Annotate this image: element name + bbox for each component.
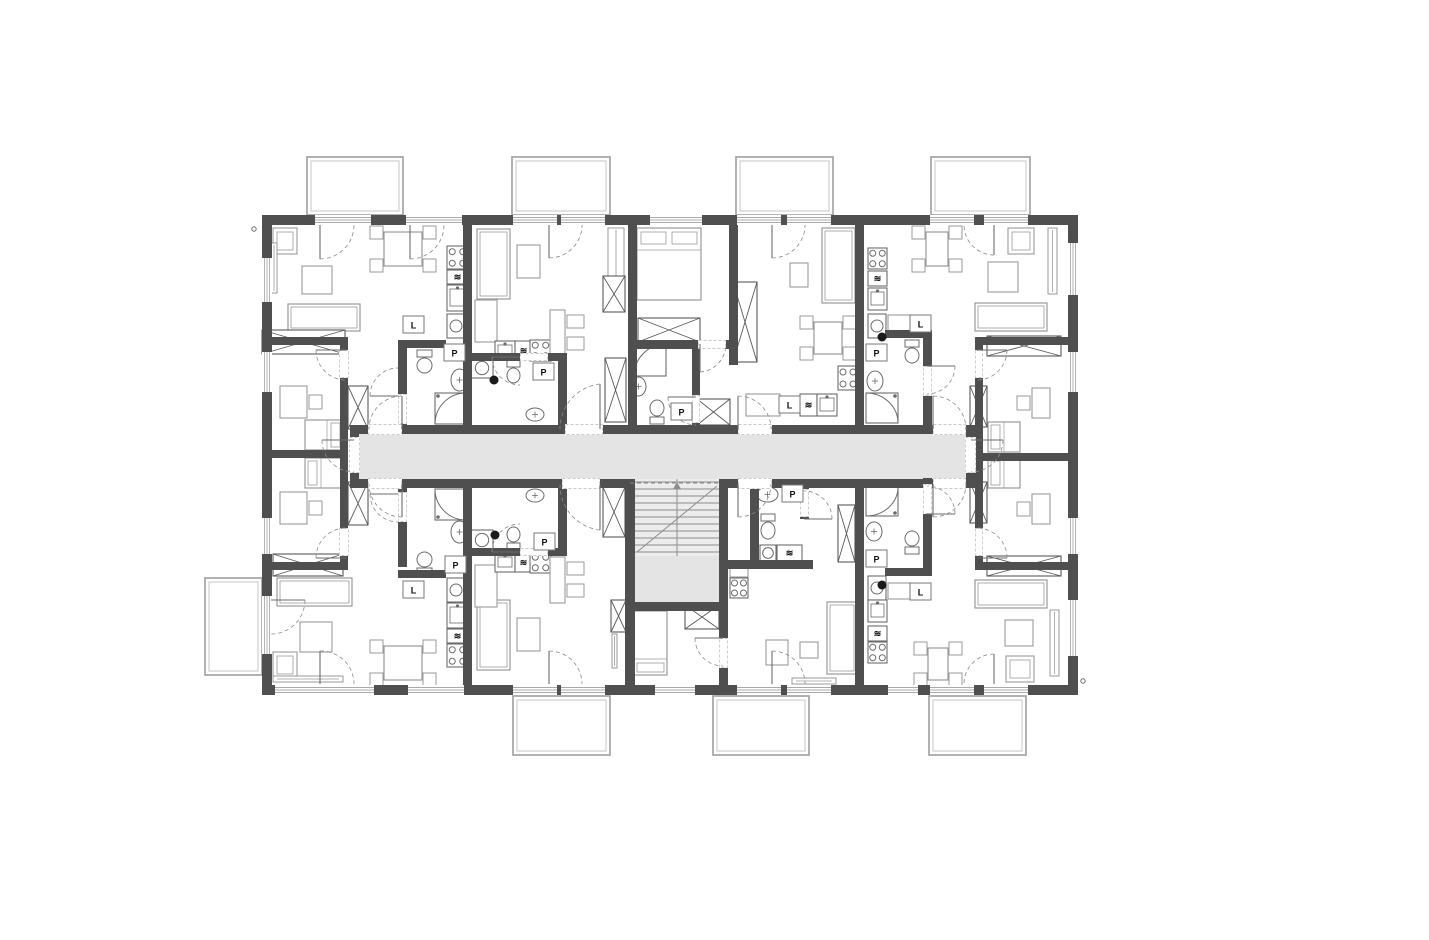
door-swing [772, 225, 805, 258]
wall [855, 225, 864, 425]
toilet-bowl [417, 552, 432, 567]
door-opening [738, 478, 772, 489]
chair [1017, 502, 1030, 516]
table [988, 262, 1018, 292]
toilet-tank [905, 547, 919, 554]
chair [949, 259, 962, 272]
balcony [736, 157, 833, 215]
wall [463, 225, 472, 425]
wall [727, 560, 813, 569]
fixture-label-P: P [873, 555, 879, 565]
kitchen-counter [475, 300, 497, 342]
table [800, 642, 818, 658]
chair [567, 584, 584, 597]
fixture-label-L: L [918, 588, 924, 598]
faucet [876, 601, 879, 604]
balcony-inner-rail [517, 700, 606, 751]
desk [1032, 388, 1050, 418]
dining-table [928, 648, 948, 680]
kitchen-counter [888, 583, 912, 599]
chair [567, 562, 584, 575]
door-opening [562, 478, 600, 489]
chair [949, 673, 962, 686]
toilet-bowl [761, 522, 775, 539]
door-opening [975, 350, 983, 378]
sofabed [477, 600, 510, 670]
toilet-bowl [417, 358, 432, 373]
wall [558, 480, 567, 556]
toilet-tank [905, 340, 919, 347]
balcony-inner-rail [717, 700, 805, 751]
fixture-label-L: L [787, 401, 793, 411]
table [302, 266, 332, 294]
wall [628, 225, 637, 425]
door-opening [339, 528, 349, 556]
floor-drain [490, 376, 499, 385]
dishwasher-symbol: ≋ [454, 631, 462, 641]
dishwasher-symbol: ≋ [454, 272, 462, 282]
bed-single [634, 611, 667, 675]
chair [423, 673, 436, 686]
table [766, 640, 788, 665]
fixture-label-P: P [452, 561, 458, 571]
fixture-label-P: P [451, 349, 457, 359]
balcony-inner-rail [933, 700, 1022, 751]
balcony [929, 696, 1026, 755]
wall [625, 479, 635, 685]
balcony-inner-rail [740, 161, 829, 211]
bed-single [305, 420, 343, 450]
balcony [713, 696, 809, 755]
door-opening [738, 424, 772, 435]
sofa [822, 228, 855, 303]
toilet-bowl [507, 368, 520, 383]
chair [949, 226, 962, 239]
shower-drain [436, 515, 440, 519]
floor-drain [878, 581, 887, 590]
kitchen-counter [746, 394, 780, 416]
balcony-inner-rail [209, 582, 258, 671]
balcony-inner-rail [311, 161, 399, 211]
sofa [277, 578, 352, 606]
chair [309, 395, 322, 409]
wall [398, 570, 446, 578]
chair [914, 673, 927, 686]
door-swing [695, 638, 723, 666]
floor-drain [491, 531, 500, 540]
fixture-label-L: L [918, 320, 924, 330]
fixture-label-P: P [789, 490, 795, 500]
toilet-tank [417, 350, 432, 357]
survey-mark [252, 227, 256, 231]
balcony [931, 157, 1030, 215]
door-opening [719, 638, 728, 668]
sofabed [477, 229, 510, 299]
door-opening [698, 340, 726, 349]
balcony [205, 578, 262, 675]
door-opening [933, 424, 966, 435]
door-opening [339, 350, 349, 378]
door-opening [923, 484, 932, 514]
shower-drain [893, 394, 897, 398]
wall [463, 488, 472, 685]
staircase-landing [635, 556, 719, 602]
door-opening [692, 395, 700, 423]
balcony-inner-rail [516, 161, 606, 211]
faucet [456, 286, 459, 289]
dishwasher-symbol: ≋ [786, 548, 794, 558]
dining-table [814, 322, 842, 354]
wall [350, 425, 975, 434]
wall [625, 602, 728, 611]
kitchen-counter [475, 565, 497, 607]
chair [912, 259, 925, 272]
chair [949, 642, 962, 655]
shower [435, 489, 466, 520]
door-opening [368, 478, 402, 489]
wall [750, 479, 759, 564]
chair [843, 347, 856, 360]
wall [729, 225, 738, 365]
toilet-tank [650, 417, 664, 424]
chair [843, 316, 856, 329]
chair [370, 226, 383, 239]
balcony [307, 157, 403, 215]
faucet [825, 395, 828, 398]
chair [370, 259, 383, 272]
dishwasher-symbol: ≋ [805, 400, 813, 410]
chair [800, 316, 813, 329]
fixture-label-P: P [873, 349, 879, 359]
balcony [512, 157, 610, 215]
balcony-inner-rail [935, 161, 1026, 211]
sofa [288, 304, 360, 331]
sofa [827, 602, 857, 674]
shower-drain [436, 394, 440, 398]
wall [983, 337, 1069, 345]
dishwasher-symbol: ≋ [874, 629, 882, 639]
dishwasher-symbol: ≋ [874, 274, 882, 284]
wall [262, 562, 348, 570]
chair [1017, 396, 1030, 410]
table [517, 618, 540, 651]
table [300, 622, 332, 652]
door-swing [370, 494, 398, 522]
sofa [975, 303, 1047, 331]
chair [912, 226, 925, 239]
chair [370, 640, 383, 653]
desk [1032, 494, 1050, 524]
wall [398, 340, 446, 348]
wall [262, 450, 348, 458]
balcony [513, 696, 610, 755]
door-swing [320, 225, 354, 259]
bed-single [305, 458, 343, 488]
table [790, 263, 808, 287]
table [1005, 620, 1033, 646]
shower [435, 393, 466, 424]
chair [914, 642, 927, 655]
table [517, 245, 540, 278]
toilet-bowl [507, 527, 520, 542]
desk [280, 492, 307, 524]
door-opening [368, 424, 402, 435]
chair [800, 347, 813, 360]
survey-mark [1081, 679, 1085, 683]
fixture-label-P: P [541, 538, 547, 548]
door-swing [549, 651, 582, 684]
toilet-bowl [905, 348, 919, 363]
faucet [876, 289, 879, 292]
chair [567, 337, 584, 350]
door-opening [565, 424, 603, 435]
toilet-tank [507, 360, 520, 367]
door-opening [975, 528, 983, 556]
bed-double [637, 228, 701, 300]
door-opening [923, 366, 932, 396]
fixture-label-L: L [411, 321, 417, 331]
chair [370, 673, 383, 686]
door-swing [549, 225, 582, 258]
dishwasher-symbol: ≋ [520, 558, 528, 568]
fixture-label-P: P [540, 368, 546, 378]
toilet-bowl [650, 400, 664, 416]
dining-table [926, 232, 948, 266]
faucet [503, 342, 506, 345]
chair [423, 640, 436, 653]
door-opening [349, 437, 360, 473]
toilet-bowl [905, 531, 919, 546]
door-swing [964, 654, 994, 684]
chair [423, 259, 436, 272]
floor-drain [878, 333, 887, 342]
door-opening [520, 353, 548, 361]
door-swing [964, 225, 994, 255]
wall [262, 337, 348, 345]
door-opening [933, 478, 966, 489]
door-opening [965, 437, 976, 473]
kitchen-peninsula [550, 310, 565, 356]
floor-plan: ≋≋≋≋≋≋≋≋LPPPLLPLPPPPL [0, 0, 1429, 940]
kitchen-counter [888, 315, 912, 331]
chair [423, 226, 436, 239]
dining-table [384, 646, 422, 680]
wall [855, 488, 864, 685]
chair [567, 315, 584, 328]
toilet-tank [761, 514, 775, 521]
corridor [359, 434, 966, 479]
desk [280, 386, 307, 418]
chair [309, 501, 322, 515]
fixture-label-P: P [678, 408, 684, 418]
kitchen-peninsula [550, 557, 565, 603]
shower-drain [893, 511, 897, 515]
wall [983, 562, 1069, 570]
dining-table [384, 232, 422, 266]
fixture-label-L: L [411, 586, 417, 596]
floor-plan-svg: ≋≋≋≋≋≋≋≋LPPPLLPLPPPPL [0, 0, 1429, 940]
door-swing [370, 368, 398, 396]
faucet [456, 604, 459, 607]
sofa [975, 580, 1047, 608]
